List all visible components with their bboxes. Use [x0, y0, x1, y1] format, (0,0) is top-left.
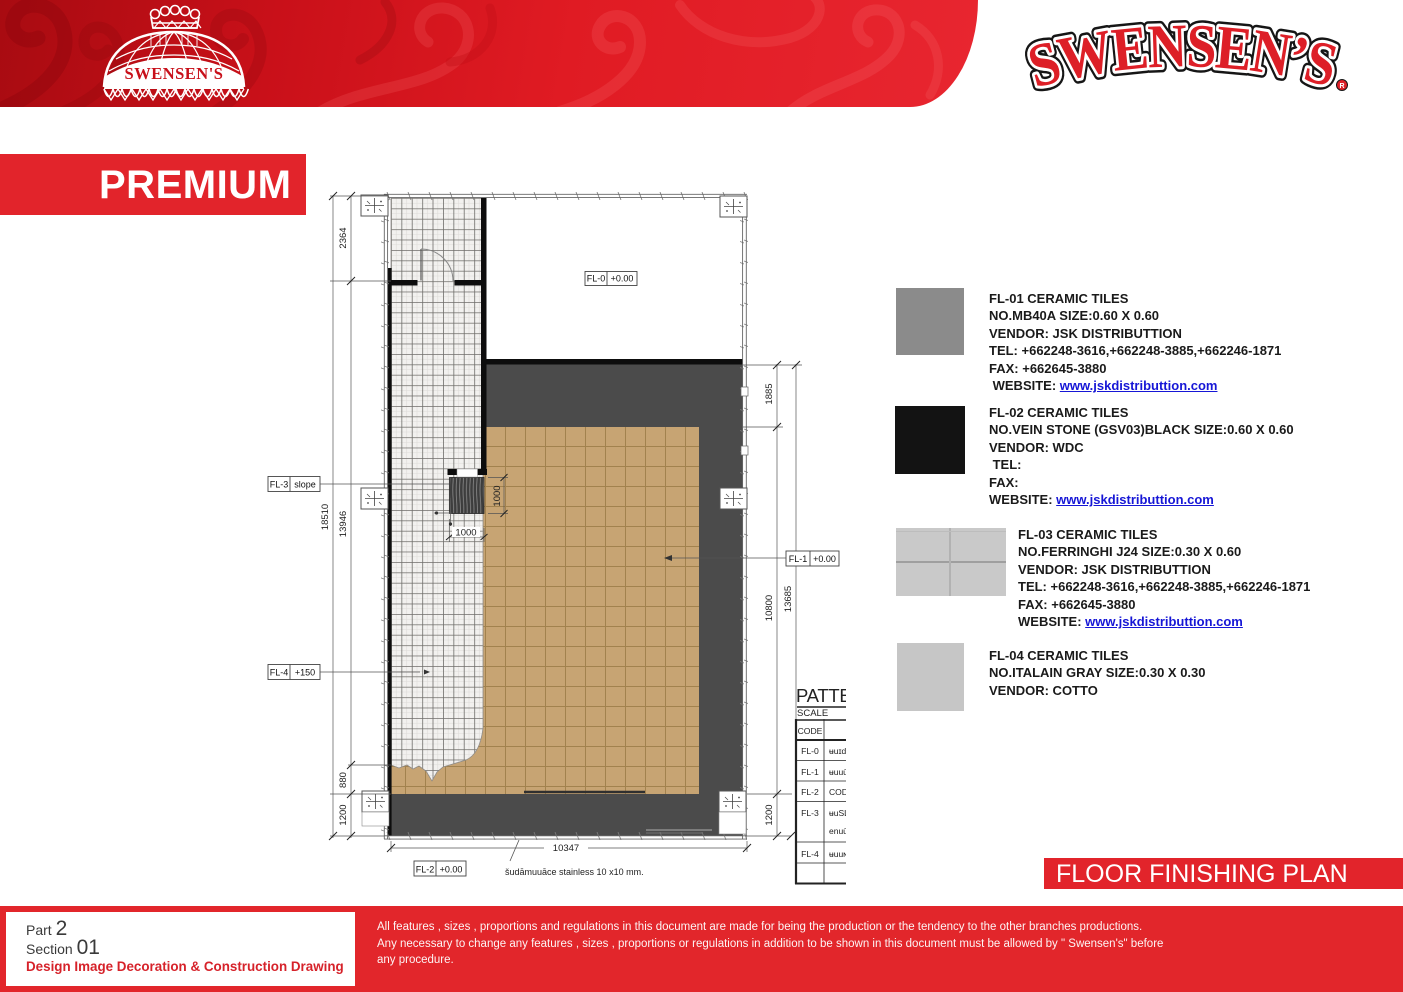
svg-text:FL-0: FL-0: [801, 746, 819, 756]
svg-text:šudāmuuāce stainless 10 x10 mm: šudāmuuāce stainless 10 x10 mm.: [505, 867, 644, 877]
svg-text:10800: 10800: [764, 595, 775, 621]
svg-text:2364: 2364: [338, 227, 349, 248]
svg-text:enuūo: enuūo: [829, 826, 853, 836]
svg-text:880: 880: [338, 772, 349, 788]
svg-text:13685: 13685: [783, 586, 794, 612]
svg-text:1000: 1000: [492, 485, 503, 506]
svg-text:+0.00: +0.00: [611, 274, 634, 284]
svg-text:1200: 1200: [338, 804, 349, 825]
svg-text:+0.00: +0.00: [440, 865, 463, 875]
svg-text:SCALE: SCALE: [797, 708, 828, 719]
svg-text:10347: 10347: [553, 843, 579, 854]
svg-text:1200: 1200: [764, 804, 775, 825]
svg-text:FL-3: FL-3: [801, 808, 819, 818]
svg-text:FL-1: FL-1: [789, 554, 808, 564]
svg-text:13946: 13946: [338, 511, 349, 537]
svg-text:FL-2: FL-2: [801, 787, 819, 797]
svg-text:FL-3: FL-3: [270, 480, 289, 490]
svg-text:CODE: CODE: [829, 787, 854, 797]
svg-text:CODE: CODE: [798, 726, 823, 736]
svg-text:+150: +150: [295, 668, 315, 678]
svg-text:PATTERN: PATTERN: [796, 685, 878, 706]
svg-text:FL-4: FL-4: [801, 849, 819, 859]
svg-text:slope: slope: [294, 480, 316, 490]
svg-text:ʉuSL(: ʉuSL(: [829, 808, 852, 818]
svg-text:18510: 18510: [320, 504, 331, 530]
svg-text:FL-2: FL-2: [416, 865, 435, 875]
svg-text:+0.00: +0.00: [813, 554, 836, 564]
svg-text:FL-0: FL-0: [587, 274, 606, 284]
svg-text:FL-1: FL-1: [801, 767, 819, 777]
svg-text:1885: 1885: [764, 383, 775, 404]
svg-text:FL-4: FL-4: [270, 668, 289, 678]
svg-text:ʉuuū: ʉuuū: [829, 767, 848, 777]
svg-text:1000: 1000: [455, 528, 476, 539]
svg-text:ʉuɪdā: ʉuɪdā: [829, 746, 851, 756]
svg-text:ʉuuɴ: ʉuuɴ: [829, 849, 848, 859]
